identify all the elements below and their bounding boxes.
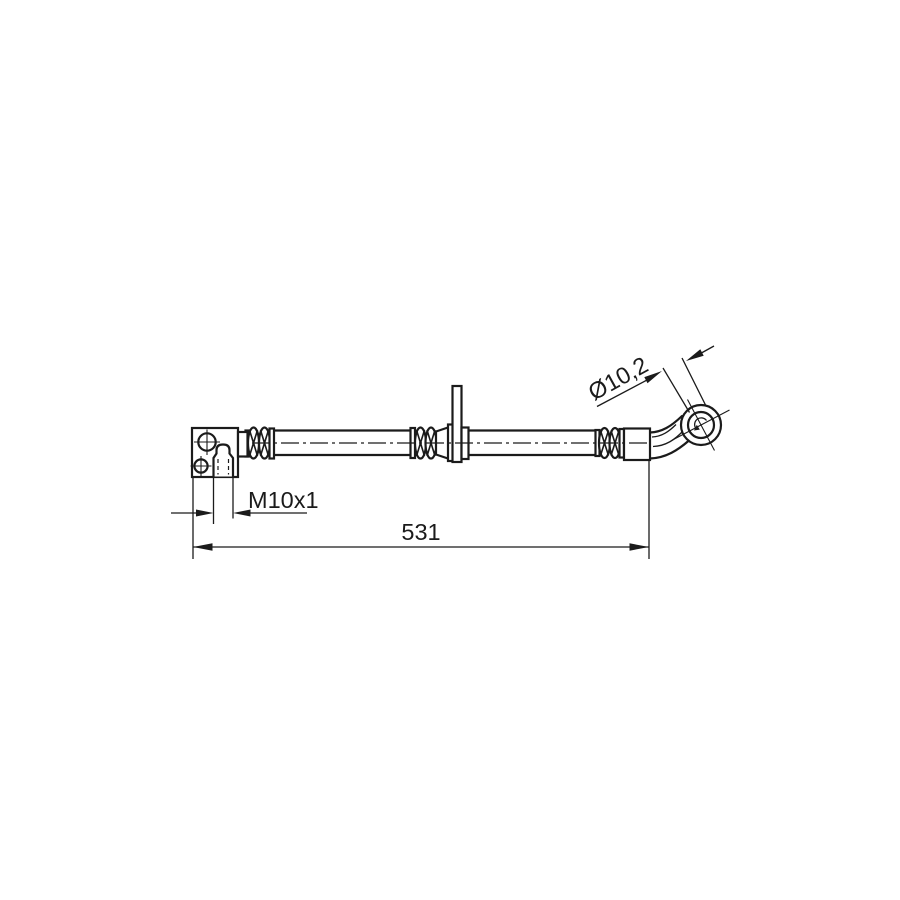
brake-hose-diagram: Ø10,2 M10x1 531 [0, 0, 900, 900]
label-bore-diameter: Ø10,2 [584, 352, 653, 406]
bracket-hose-cap [238, 432, 248, 457]
label-thread-size: M10x1 [248, 487, 319, 513]
tab-plate [453, 386, 462, 462]
label-overall-length: 531 [401, 519, 440, 545]
end-sleeve [624, 429, 650, 461]
banjo-fitting [673, 400, 730, 451]
mid-mounting-tab [448, 386, 469, 462]
mounting-bracket [191, 428, 248, 477]
dimension-bore-diameter: Ø10,2 [584, 346, 714, 413]
drawing-page: Ø10,2 M10x1 531 [0, 0, 900, 900]
hose-end-fitting [214, 445, 234, 477]
